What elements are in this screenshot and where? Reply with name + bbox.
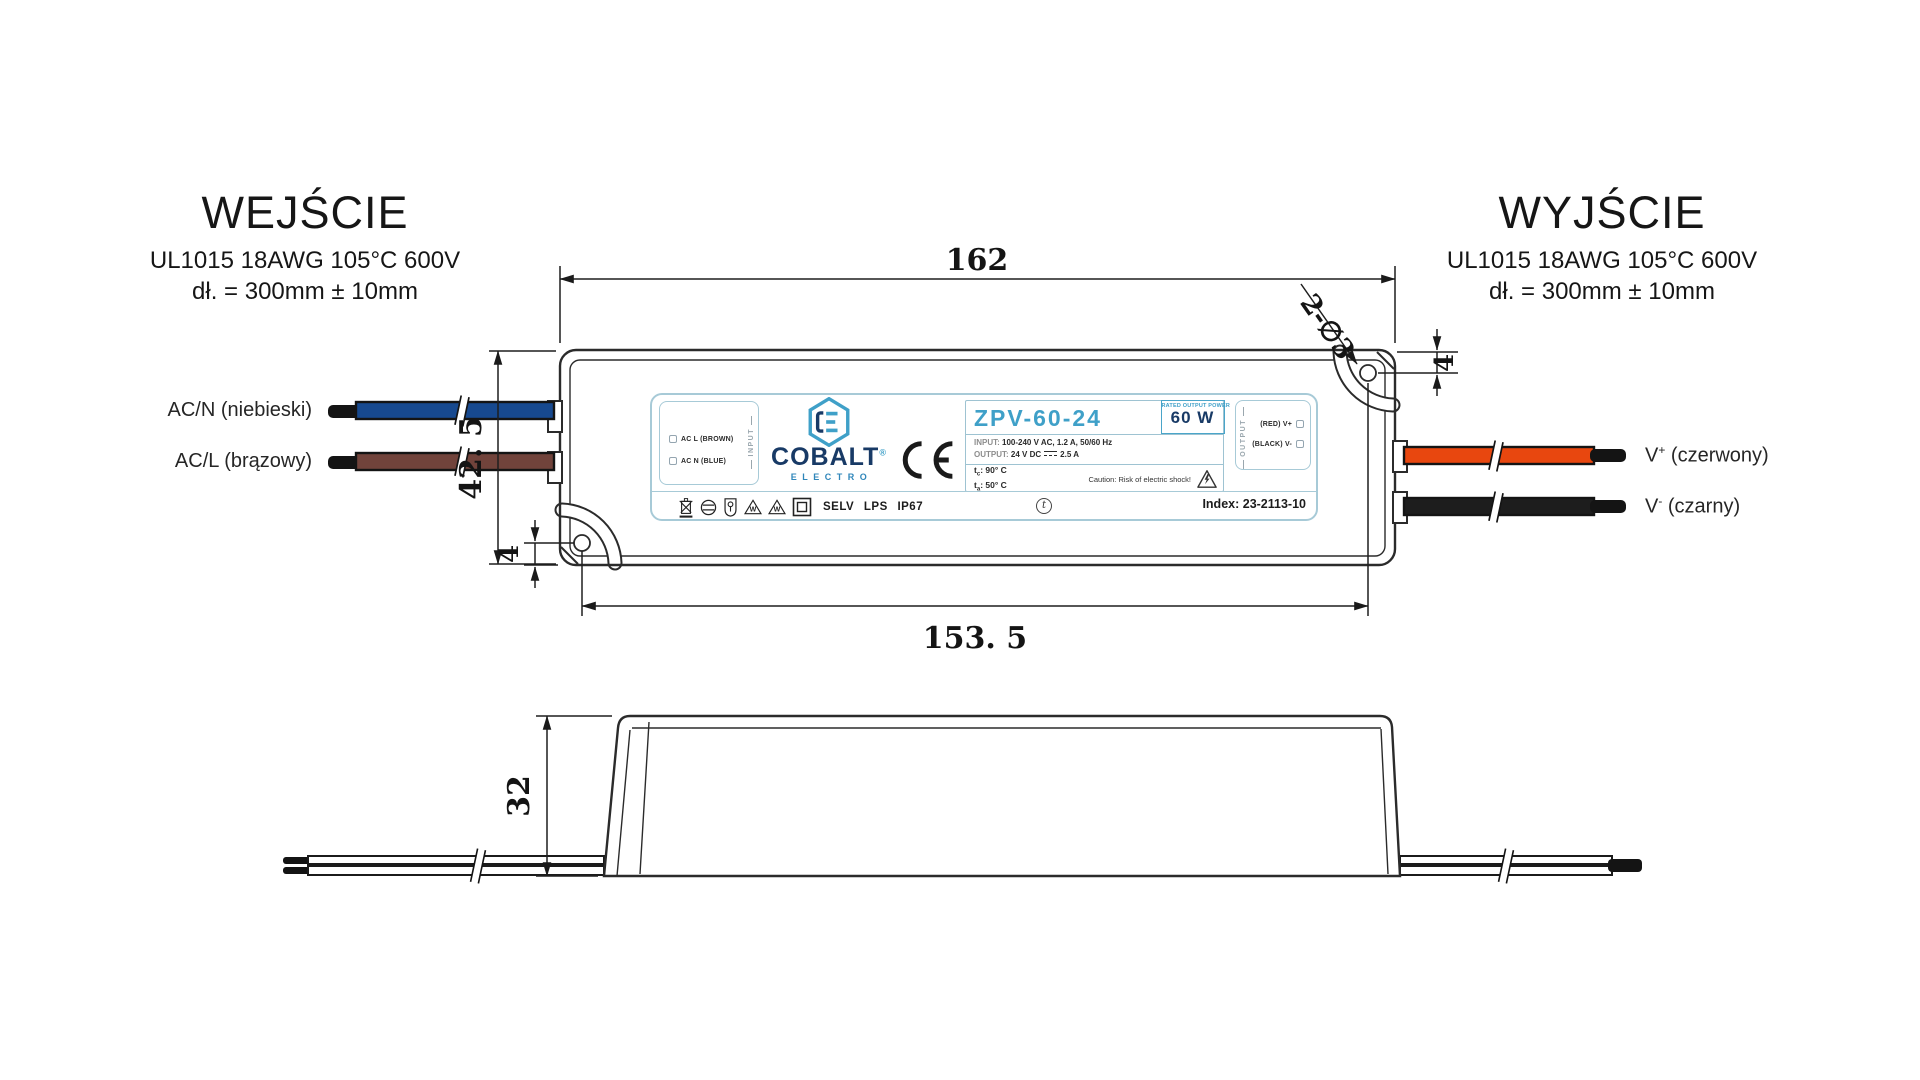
class-ii-icon [792,497,812,517]
terminal-row-v-minus: (BLACK) V- [1252,440,1304,448]
model-number: ZPV-60-24 [966,401,1161,434]
ce-mark-icon [898,439,956,481]
dim-text-4-right: 4 [1430,354,1460,372]
brand-block: COBALT® ELECTRO [764,397,894,489]
terminal-label: AC N (BLUE) [681,458,726,465]
input-spec-line: INPUT: 100-240 V AC, 1.2 A, 50/60 Hz [974,437,1215,449]
label-output-box: OUTPUT (RED) V+ (BLACK) V- [1235,400,1311,470]
dim-text-top-width: 162 [946,243,1009,278]
electrical-specs: INPUT: 100-240 V AC, 1.2 A, 50/60 Hz OUT… [966,434,1223,464]
weee-bin-icon [678,495,694,519]
brand-subname: ELECTRO [786,472,873,482]
mounting-hole-bottom-left [574,535,590,551]
dimension-drawing: 162 42. 5 153. 5 32 2-∅3 4 4 [0,0,1920,1080]
output-wire-spec: UL1015 18AWG 105°C 600V [1392,247,1812,275]
output-title: WYJŚCIE [1392,190,1812,235]
output-length-spec: dł. = 300mm ± 10mm [1392,278,1812,306]
technical-drawing-page: 162 42. 5 153. 5 32 2-∅3 4 4 WEJŚCIE UL1… [0,0,1920,1080]
wire-label-v-minus: V- (czarny) [1645,494,1740,519]
caution-text: Caution: Risk of electric shock! [1088,475,1191,484]
input-wire-spec: UL1015 18AWG 105°C 600V [95,247,515,275]
rated-power-cell: RATED OUTPUT POWER 60 W [1161,400,1225,435]
output-spec-line: OUTPUT: 24 V DC2.5 A [974,449,1215,461]
terminal-row-ac-l: AC L (BROWN) [669,435,733,443]
checkbox [1296,440,1304,448]
side-view [283,716,1642,883]
caution-block: Caution: Risk of electric shock! [1038,469,1223,489]
product-label: AC L (BROWN) AC N (BLUE) INPUT COBALT® E… [650,393,1318,521]
terminal-row-ac-n: AC N (BLUE) [669,457,726,465]
checkbox [669,457,677,465]
wire-label-v-plus: V+ (czerwony) [1645,443,1769,468]
label-input-box: AC L (BROWN) AC N (BLUE) INPUT [659,401,759,485]
checkbox [1296,420,1304,428]
rated-power-value: 60 W [1162,409,1224,426]
temperature-ratings: tc: 90° C ta: 50° C [966,464,1038,495]
certifications-text: SELV LPS IP67 [823,501,923,513]
output-wire-red [1404,440,1626,471]
input-wire-blue [328,395,554,426]
terminal-label: (RED) V+ [1260,421,1292,428]
wire-label-ac-n: AC/N (niebieski) [90,399,312,422]
output-vertical-label: OUTPUT [1240,407,1247,469]
certification-row: W W SELV LPS IP67 [678,495,923,519]
side-profile [604,716,1400,876]
index-number: Index: 23-2113-10 [1202,497,1306,511]
spec-box: ZPV-60-24 RATED OUTPUT POWER 60 W INPUT:… [965,400,1224,492]
svg-text:W: W [750,505,757,513]
dc-symbol-icon [1044,450,1057,457]
shield-mark-icon [723,497,738,517]
output-header: WYJŚCIE UL1015 18AWG 105°C 600V dł. = 30… [1392,190,1812,306]
circle-mark-icon [700,499,717,516]
input-wire-brown [328,446,554,477]
dim-text-4-left: 4 [495,545,525,563]
output-wire-black [1404,491,1626,522]
checkbox [669,435,677,443]
dim-text-left-height: 42. 5 [454,416,489,500]
terminal-label: (BLACK) V- [1252,441,1292,448]
dim-text-hole-spacing: 153. 5 [923,621,1027,656]
hexagon-logo-icon [806,397,852,447]
terminal-row-v-plus: (RED) V+ [1260,420,1304,428]
input-vertical-label: INPUT [748,416,755,469]
dim-text-side-height: 32 [502,775,537,817]
model-row: ZPV-60-24 RATED OUTPUT POWER 60 W [966,401,1223,434]
terminal-label: AC L (BROWN) [681,436,733,443]
wire-label-ac-l: AC/L (brązowy) [90,450,312,473]
w-triangle-icon: W [744,499,762,515]
warning-triangle-icon [1196,469,1218,489]
svg-text:W: W [774,505,781,513]
temp-caution-row: tc: 90° C ta: 50° C Caution: Risk of ele… [966,464,1223,493]
w-triangle-icon: W [768,499,786,515]
label-divider [652,491,1316,492]
mounting-hole-top-right [1360,365,1376,381]
t-circle-icon: t [1036,498,1052,514]
brand-name: COBALT® [771,445,887,470]
input-header: WEJŚCIE UL1015 18AWG 105°C 600V dł. = 30… [95,190,515,306]
input-title: WEJŚCIE [95,190,515,235]
input-length-spec: dł. = 300mm ± 10mm [95,278,515,306]
